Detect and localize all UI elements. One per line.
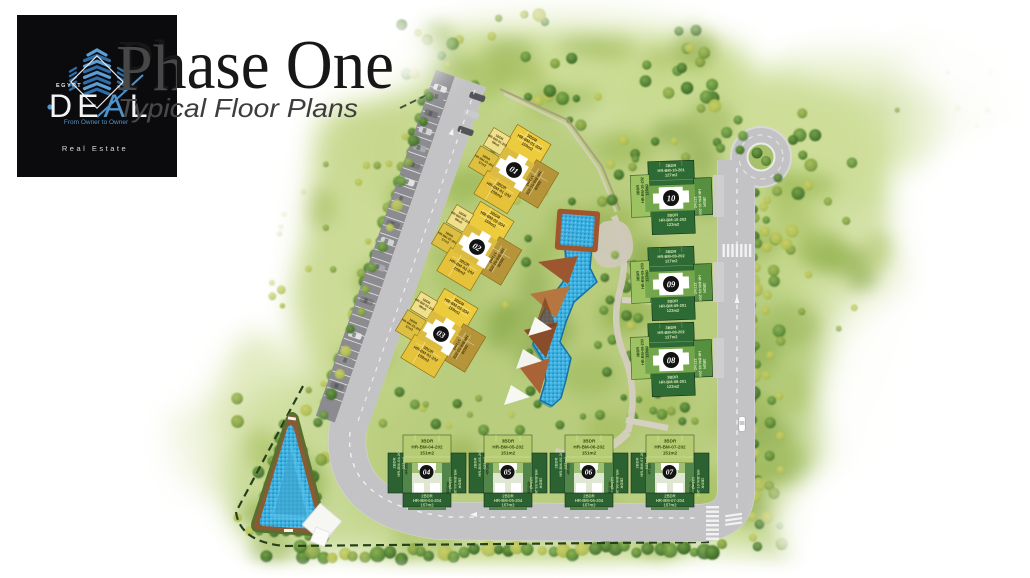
svg-text:09: 09 (667, 279, 677, 289)
svg-text:04: 04 (423, 468, 431, 477)
svg-text:06: 06 (585, 468, 593, 477)
svg-text:-05-201: -05-201 (486, 463, 490, 475)
svg-text:08: 08 (667, 355, 677, 365)
svg-text:Real Estate: Real Estate (62, 144, 128, 153)
svg-text:-06-201: -06-201 (567, 463, 571, 475)
svg-text:05: 05 (504, 468, 512, 477)
svg-text:07: 07 (666, 468, 674, 477)
svg-text:-04-201: -04-201 (405, 463, 409, 475)
svg-text:-07-201: -07-201 (648, 463, 652, 475)
svg-text:10: 10 (667, 193, 677, 203)
